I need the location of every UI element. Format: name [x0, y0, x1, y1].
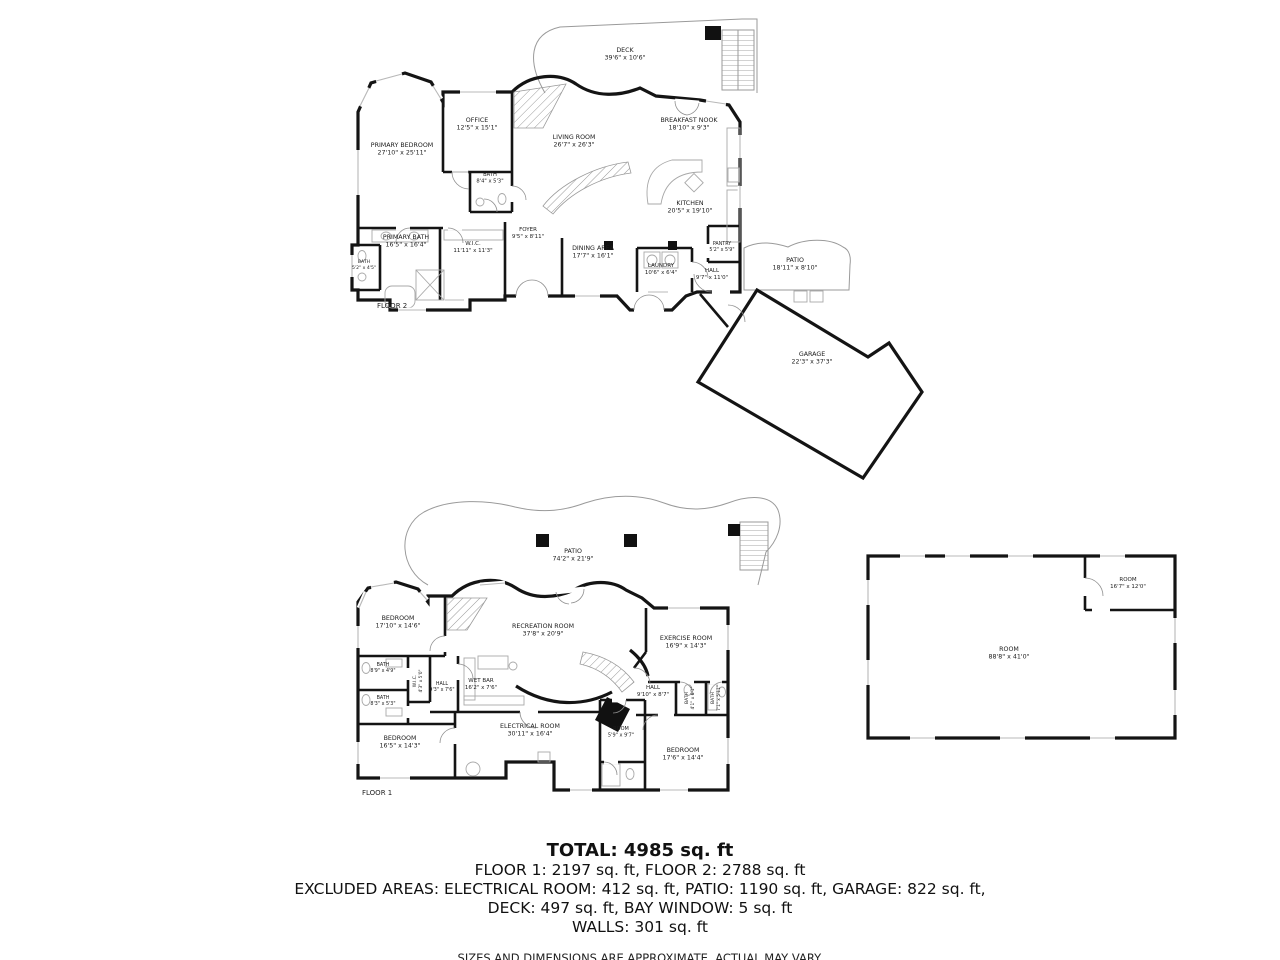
- floor1-curved-stair: [580, 652, 634, 692]
- excluded-areas-1: EXCLUDED AREAS: ELECTRICAL ROOM: 412 sq.…: [0, 880, 1280, 899]
- room-label: BREAKFAST NOOK18'10" x 9'3": [660, 117, 718, 132]
- room-label: W.I.C.11'11" x 11'3": [453, 241, 492, 254]
- room-label: BEDROOM17'6" x 14'4": [662, 747, 703, 762]
- room-label: ROOM88'8" x 41'0": [988, 646, 1029, 661]
- wic-shelf: [444, 230, 503, 240]
- floor-plan-canvas: FLOOR 2 DECK39'6" x 10'6"PRIMARY BEDROOM…: [0, 0, 1280, 960]
- room-label: HALL9'3" x 7'6": [429, 681, 454, 693]
- room-label: BATH8'3" x 5'3": [370, 695, 395, 707]
- total-area: TOTAL: 4985 sq. ft: [0, 840, 1280, 861]
- room-label: GARAGE22'3" x 37'3": [791, 351, 832, 366]
- room-label: FOYER9'5" x 8'11": [512, 227, 544, 240]
- floor2-curved-stair: [543, 162, 631, 214]
- garage-outline: [698, 290, 922, 478]
- outbuilding-room-labels: ROOM16'7" x 12'0"ROOM88'8" x 41'0": [988, 577, 1145, 661]
- floor2-stair-hatch: [514, 84, 566, 128]
- summary-block: TOTAL: 4985 sq. ft FLOOR 1: 2197 sq. ft,…: [0, 840, 1280, 960]
- room-label: BATH5'2" x 4'5": [352, 259, 376, 271]
- room-label: HALL9'7" x 11'0": [696, 268, 728, 281]
- outbuilding-plan: ROOM16'7" x 12'0"ROOM88'8" x 41'0": [868, 556, 1175, 738]
- floor1-label: FLOOR 1: [362, 789, 392, 797]
- room-label: HALL9'10" x 8'7": [637, 685, 669, 698]
- column: [668, 241, 677, 250]
- room-label: PATIO74'2" x 21'9": [552, 548, 593, 563]
- room-label: BEDROOM16'5" x 14'3": [379, 735, 420, 750]
- kitchen-island: [647, 160, 702, 204]
- room-label: W.I.C.4'3" x 5'0": [412, 669, 424, 692]
- floor1-plan: FLOOR 1 PATIO74'2" x 21'9"BEDROOM17'10" …: [358, 496, 780, 797]
- room-label: KITCHEN20'5" x 19'10": [667, 200, 712, 215]
- patio-stairs: [740, 522, 768, 570]
- room-label: BEDROOM17'10" x 14'6": [375, 615, 420, 630]
- floor1-stair-hatch: [447, 598, 487, 630]
- floor-plan-page: FLOOR 2 DECK39'6" x 10'6"PRIMARY BEDROOM…: [0, 0, 1280, 960]
- room-label: PATIO18'11" x 8'10": [772, 257, 817, 272]
- patio1-outline: [405, 496, 780, 585]
- excluded-areas-2: DECK: 497 sq. ft, BAY WINDOW: 5 sq. ft: [0, 899, 1280, 918]
- room-label: OFFICE12'5" x 15'1": [456, 117, 497, 132]
- water-heater: [466, 762, 480, 776]
- room-label: ROOM16'7" x 12'0": [1110, 577, 1146, 590]
- room-label: BATH8'9" x 4'9": [370, 662, 395, 674]
- room-label: PRIMARY BEDROOM27'10" x 25'11": [371, 142, 433, 157]
- room-label: BATH8'4" x 5'3": [476, 172, 503, 185]
- room-label: LIVING ROOM26'7" x 26'3": [553, 134, 596, 149]
- room-label: DINING AREA17'7" x 16'1": [572, 245, 615, 260]
- room-label: WET BAR16'2" x 7'6": [465, 678, 497, 691]
- room-label: BATH4'1" x 6'1": [684, 686, 696, 709]
- floor2-plan: FLOOR 2 DECK39'6" x 10'6"PRIMARY BEDROOM…: [352, 19, 922, 478]
- disclaimer: SIZES AND DIMENSIONS ARE APPROXIMATE, AC…: [0, 951, 1280, 960]
- floor-areas: FLOOR 1: 2197 sq. ft, FLOOR 2: 2788 sq. …: [0, 861, 1280, 880]
- room-label: PANTRY5'2" x 5'9": [709, 241, 734, 253]
- room-label: PRIMARY BATH16'5" x 16'4": [383, 234, 430, 249]
- room-label: RECREATION ROOM37'8" x 20'9": [512, 623, 574, 638]
- walls-area: WALLS: 301 sq. ft: [0, 918, 1280, 937]
- room-label: ELECTRICAL ROOM30'11" x 16'4": [500, 723, 560, 738]
- room-label: DECK39'6" x 10'6": [604, 47, 645, 62]
- room-label: LAUNDRY10'6" x 6'4": [645, 263, 677, 276]
- floor2-label: FLOOR 2: [377, 302, 407, 310]
- room-label: EXERCISE ROOM16'9" x 14'3": [660, 635, 712, 650]
- stove: [728, 168, 739, 182]
- floor2-room-labels: DECK39'6" x 10'6"PRIMARY BEDROOM27'10" x…: [352, 47, 833, 366]
